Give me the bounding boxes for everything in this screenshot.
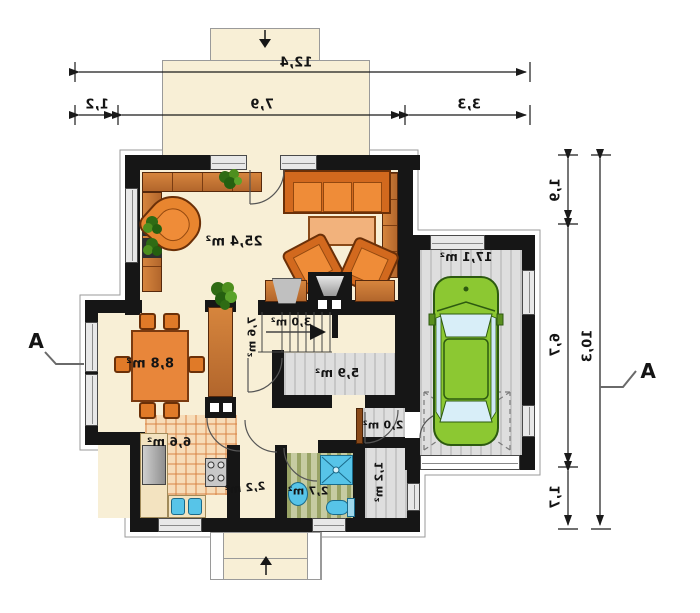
section-marker-right: A	[640, 359, 656, 383]
room-label-stairs: 3,0 m²	[271, 316, 312, 329]
room-label-corridor: 7,6 m²	[246, 317, 259, 358]
dim-right-mid: 6,7	[549, 333, 564, 357]
room-label-garage: 17,1 m²	[440, 250, 493, 264]
door-arcs	[207, 170, 445, 481]
room-label-hall: 5,9 m²	[315, 366, 359, 380]
section-marker-left: A	[28, 329, 44, 353]
car	[429, 277, 503, 445]
plant-icon	[211, 282, 237, 310]
room-label-bathroom: 2,7 m²	[288, 485, 329, 498]
stove-burners	[208, 462, 224, 481]
floor-plan: 25,4 m² 17,1 m² 8,8 m² 6,6 m² 7,6 m² 3,0…	[0, 0, 700, 613]
dim-right-top: 1,9	[549, 178, 564, 202]
room-label-storage: 1,2 m²	[373, 462, 386, 503]
dim-total-height: 10,3	[581, 330, 596, 363]
dim-top-mid: 7,9	[250, 98, 274, 113]
room-label-kitchen: 6,6 m²	[147, 435, 191, 449]
dim-top-left: 1,2	[85, 98, 109, 113]
plant-icon	[143, 216, 162, 234]
shower-detail	[322, 457, 351, 483]
dim-right-bottom: 1,7	[549, 485, 564, 509]
dimension-lines	[75, 62, 611, 529]
room-label-vestibule: 2,0 m²	[363, 419, 404, 432]
dim-top-right: 3,3	[457, 98, 481, 113]
linework-overlay	[0, 0, 700, 613]
room-label-living: 25,4 m²	[205, 235, 262, 250]
plant-icon	[143, 238, 162, 256]
plant-icon	[219, 169, 242, 189]
dim-total-width: 12,4	[280, 56, 313, 71]
room-label-dining: 8,8 m²	[126, 357, 174, 372]
